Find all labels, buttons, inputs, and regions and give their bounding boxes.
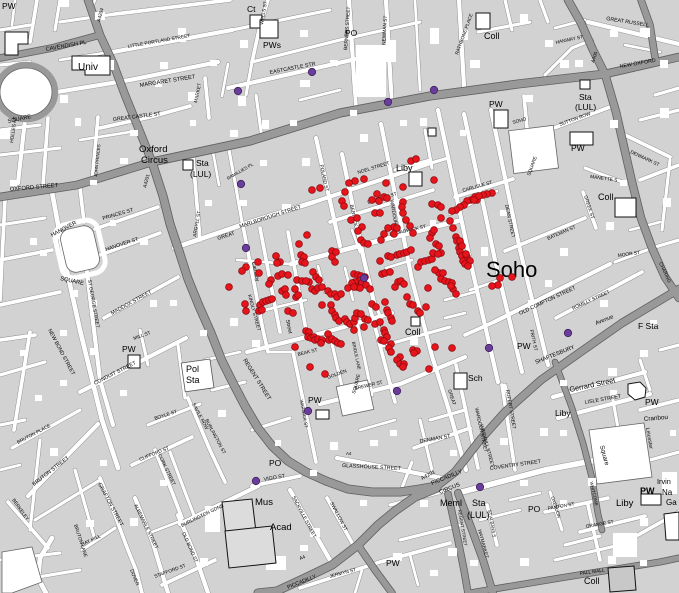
svg-text:PO: PO bbox=[269, 458, 282, 468]
svg-text:Pol: Pol bbox=[186, 364, 199, 374]
svg-text:PW: PW bbox=[640, 486, 655, 496]
svg-text:Mus: Mus bbox=[255, 497, 273, 508]
svg-text:PW: PW bbox=[122, 344, 136, 354]
svg-text:Coll: Coll bbox=[584, 576, 600, 586]
svg-text:Sta: Sta bbox=[579, 92, 592, 102]
svg-text:Sta: Sta bbox=[186, 375, 200, 385]
svg-text:Sch: Sch bbox=[468, 373, 483, 383]
svg-text:Circus: Circus bbox=[141, 155, 168, 166]
svg-text:Acad: Acad bbox=[270, 522, 292, 533]
svg-text:Univ: Univ bbox=[78, 62, 98, 73]
svg-text:PW: PW bbox=[645, 397, 659, 407]
svg-text:F Sta: F Sta bbox=[638, 321, 659, 331]
svg-text:(LUL): (LUL) bbox=[190, 169, 211, 179]
svg-text:Irvin: Irvin bbox=[657, 477, 671, 486]
svg-text:Sta: Sta bbox=[472, 498, 486, 508]
svg-text:Meml: Meml bbox=[440, 498, 462, 508]
svg-text:Oxford: Oxford bbox=[139, 144, 168, 155]
svg-text:Ga: Ga bbox=[666, 498, 677, 507]
svg-text:PW: PW bbox=[308, 395, 322, 405]
svg-text:PW: PW bbox=[2, 1, 16, 11]
svg-text:A4: A4 bbox=[346, 451, 352, 456]
svg-text:Na: Na bbox=[662, 488, 673, 497]
svg-text:PWs: PWs bbox=[263, 40, 281, 50]
svg-text:Liby: Liby bbox=[555, 408, 571, 418]
svg-text:PW: PW bbox=[517, 341, 531, 351]
svg-text:PO: PO bbox=[528, 504, 541, 514]
svg-text:PW: PW bbox=[386, 558, 400, 568]
svg-text:(LUL): (LUL) bbox=[575, 102, 596, 112]
svg-text:Coll: Coll bbox=[484, 31, 500, 41]
svg-text:Ct: Ct bbox=[247, 4, 256, 14]
svg-text:PW: PW bbox=[571, 143, 585, 153]
svg-text:Liby: Liby bbox=[616, 498, 634, 509]
svg-text:(LUL): (LUL) bbox=[467, 510, 490, 520]
svg-text:Coll: Coll bbox=[598, 192, 614, 202]
svg-text:Coll: Coll bbox=[405, 327, 421, 337]
svg-text:PW: PW bbox=[489, 99, 503, 109]
svg-text:Sta: Sta bbox=[196, 158, 209, 168]
